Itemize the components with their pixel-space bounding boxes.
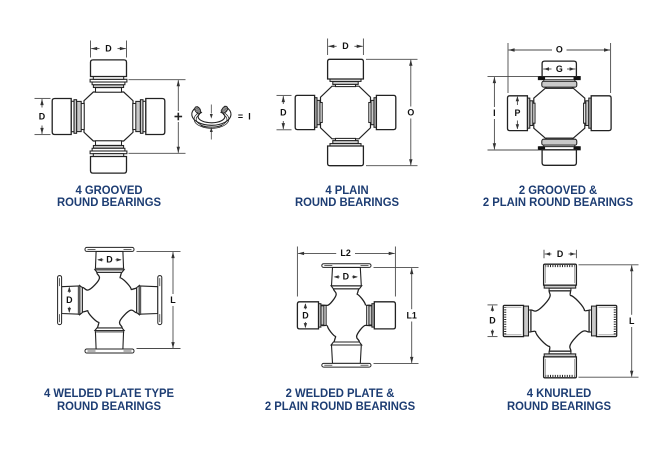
svg-text:D: D — [342, 41, 349, 51]
svg-text:O: O — [407, 107, 414, 117]
svg-text:I: I — [248, 112, 250, 122]
svg-text:D: D — [106, 255, 113, 265]
svg-text:O: O — [556, 45, 563, 55]
svg-text:D: D — [343, 272, 350, 282]
svg-text:L2: L2 — [340, 248, 350, 258]
svg-text:D: D — [302, 311, 309, 321]
svg-text:D: D — [489, 316, 496, 326]
svg-text:D: D — [280, 107, 287, 117]
svg-text:G: G — [556, 64, 563, 74]
svg-text:=: = — [238, 112, 243, 122]
svg-text:L1: L1 — [407, 310, 417, 320]
svg-text:L: L — [629, 316, 635, 326]
svg-text:I: I — [493, 108, 495, 118]
svg-text:P: P — [514, 108, 520, 118]
svg-text:D: D — [66, 295, 73, 305]
svg-text:L: L — [170, 295, 176, 305]
svg-text:D: D — [105, 43, 112, 53]
svg-text:D: D — [557, 249, 564, 259]
svg-text:D: D — [39, 111, 46, 121]
